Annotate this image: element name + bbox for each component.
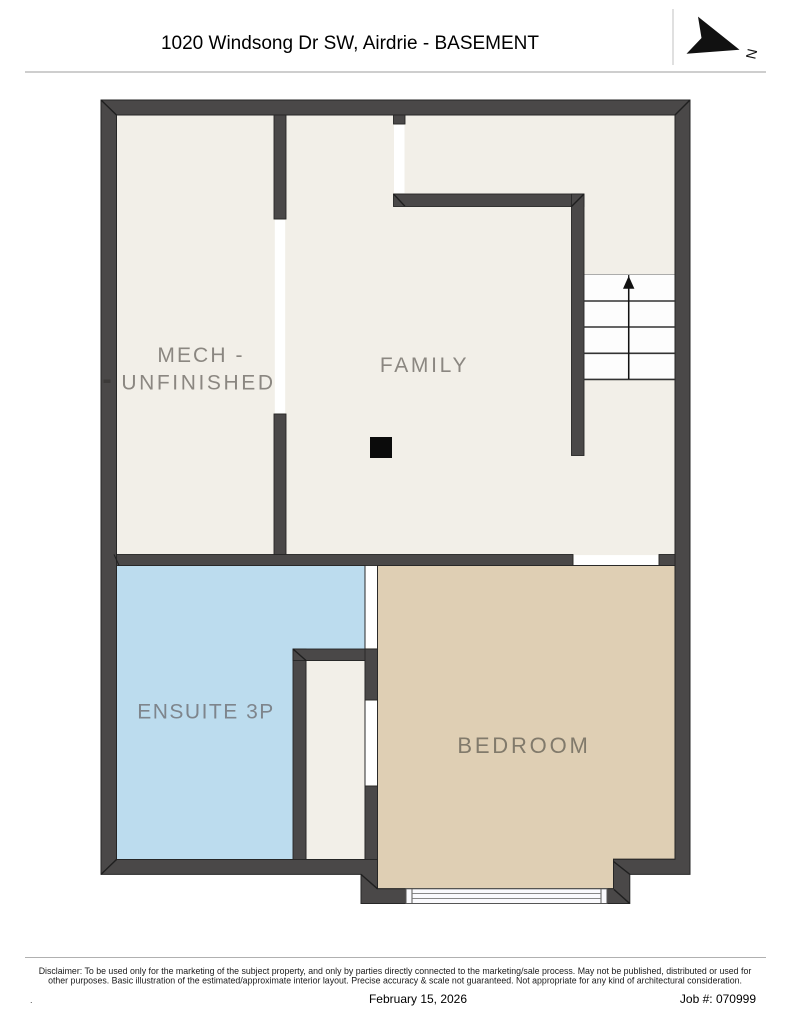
- svg-text:other purposes. Basic illustra: other purposes. Basic illustration of th…: [48, 976, 742, 986]
- svg-text:1020 Windsong Dr SW, Airdrie -: 1020 Windsong Dr SW, Airdrie - BASEMENT: [161, 33, 539, 54]
- svg-text:Disclaimer: To be used only fo: Disclaimer: To be used only for the mark…: [39, 966, 752, 976]
- svg-text:MECH -: MECH -: [157, 344, 244, 367]
- svg-text:UNFINISHED: UNFINISHED: [121, 372, 275, 395]
- svg-text:BEDROOM: BEDROOM: [457, 733, 590, 758]
- svg-text:ENSUITE 3P: ENSUITE 3P: [137, 701, 275, 724]
- svg-text:.: .: [30, 995, 33, 1005]
- svg-text:February 15, 2026: February 15, 2026: [369, 992, 467, 1006]
- svg-text:Job #: 070999: Job #: 070999: [680, 992, 756, 1006]
- svg-text:FAMILY: FAMILY: [380, 354, 469, 377]
